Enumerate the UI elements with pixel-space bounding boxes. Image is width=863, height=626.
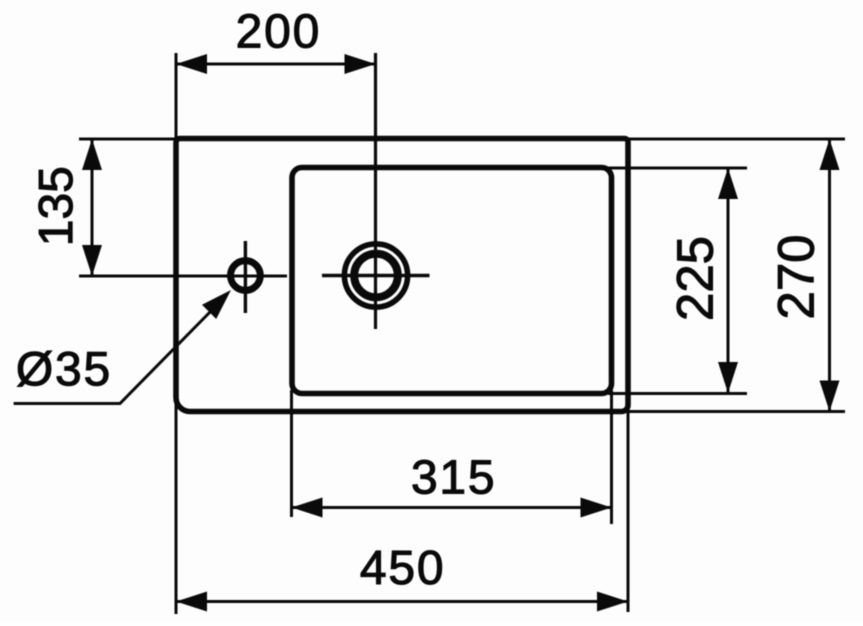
svg-text:200: 200 — [236, 5, 322, 58]
svg-text:225: 225 — [667, 236, 724, 321]
svg-text:315: 315 — [411, 451, 497, 504]
svg-text:Ø35: Ø35 — [16, 343, 112, 396]
svg-text:270: 270 — [768, 234, 825, 319]
svg-text:135: 135 — [30, 166, 83, 246]
svg-text:450: 450 — [360, 542, 446, 595]
